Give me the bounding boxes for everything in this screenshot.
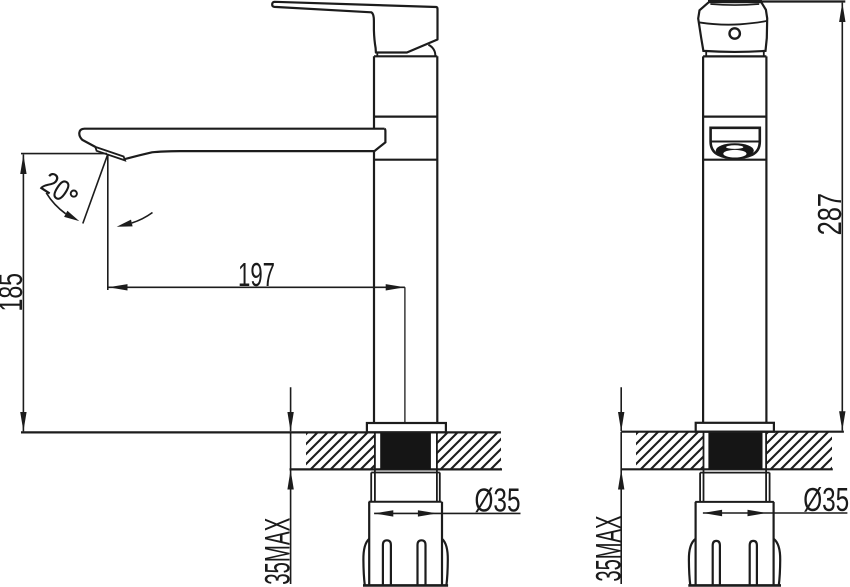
svg-text:287: 287 xyxy=(811,193,848,236)
svg-text:197: 197 xyxy=(238,256,275,293)
svg-text:35MAX: 35MAX xyxy=(589,516,628,582)
svg-text:35MAX: 35MAX xyxy=(258,518,297,585)
svg-text:Ø35: Ø35 xyxy=(803,481,849,518)
svg-text:185: 185 xyxy=(0,273,29,312)
svg-text:Ø35: Ø35 xyxy=(475,481,521,518)
